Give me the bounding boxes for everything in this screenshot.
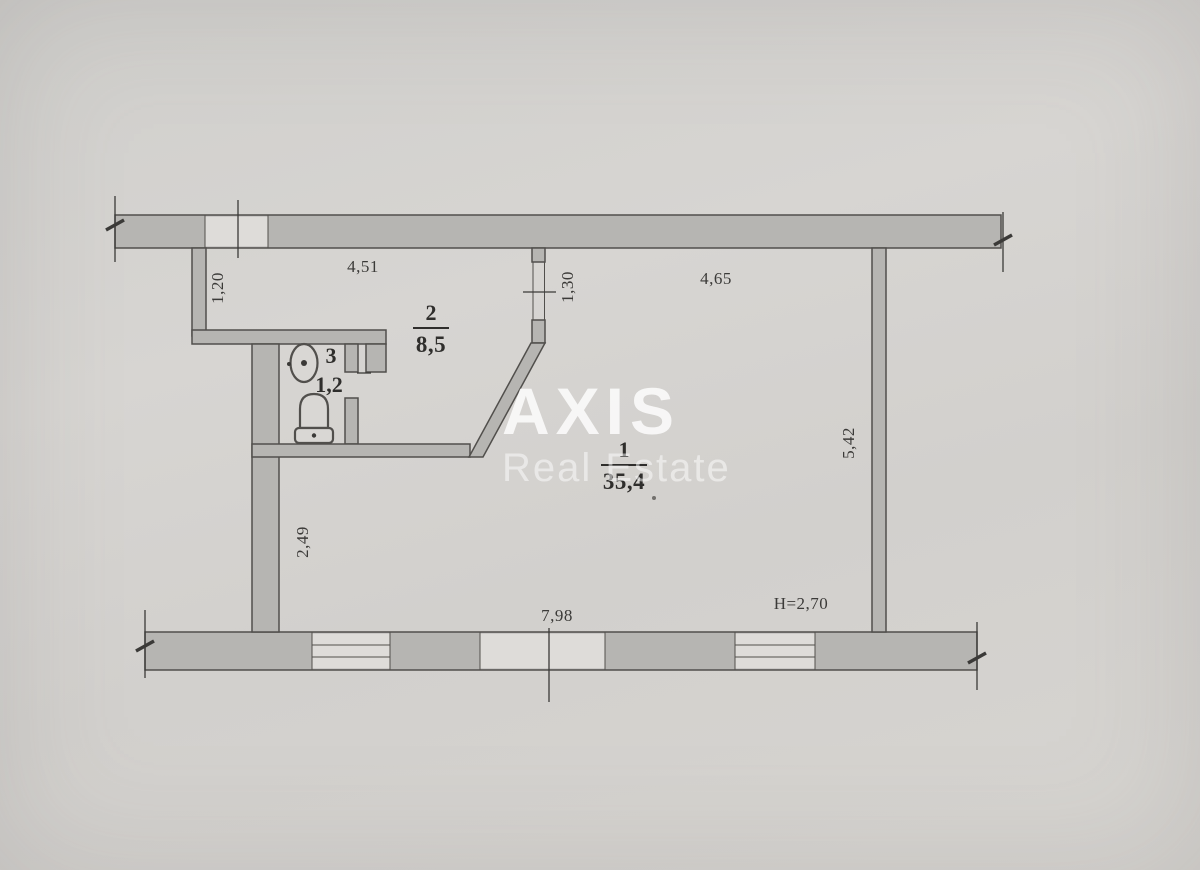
bottom-exterior-wall — [145, 632, 977, 670]
top-wall-opening — [205, 217, 268, 247]
room2-divider — [413, 327, 449, 329]
bathroom-bottom-wall — [252, 444, 470, 457]
diagonal-wall — [469, 343, 545, 457]
window-right — [735, 634, 815, 669]
room2-area: 8,5 — [416, 333, 446, 356]
room1-number: 1 — [619, 439, 630, 461]
right-wall — [872, 248, 886, 632]
toilet-icon — [295, 394, 333, 443]
room1-label: 1 35,4 — [601, 439, 647, 493]
dimension-right-depth: 5,42 — [839, 427, 859, 459]
partition-stub-top — [532, 248, 545, 262]
bathroom-door-pier — [366, 344, 386, 372]
floor-plan-photo: 4,51 4,65 1,20 1,30 5,42 2,49 7,98 H=2,7… — [0, 0, 1200, 870]
room2-number: 2 — [426, 302, 437, 324]
hall-bathroom-top-wall — [192, 330, 386, 344]
dimension-doorway: 1,30 — [558, 271, 578, 303]
window-left — [312, 634, 390, 669]
room3-area: 1,2 — [315, 372, 343, 398]
room2-label: 2 8,5 — [413, 302, 449, 356]
dimension-left-upper: 1,20 — [208, 272, 228, 304]
top-exterior-wall — [115, 215, 1001, 248]
left-upper-wall — [192, 248, 206, 336]
bathroom-right-wall-upper — [345, 344, 358, 372]
dimension-top-left: 4,51 — [347, 257, 379, 277]
ceiling-height-label: H=2,70 — [774, 594, 829, 614]
partition-stub-mid — [532, 320, 545, 343]
bottom-wall-opening — [480, 634, 605, 669]
sink-icon — [287, 344, 318, 382]
dimension-top-right: 4,65 — [700, 269, 732, 289]
floor-plan-drawing — [0, 0, 1200, 870]
bathroom-right-wall-lower — [345, 398, 358, 444]
room1-area: 35,4 — [603, 470, 645, 493]
left-lower-wall — [252, 344, 279, 632]
room1-divider — [601, 464, 647, 466]
dimension-left-lower: 2,49 — [293, 526, 313, 558]
stray-ink-mark — [652, 496, 656, 500]
dimension-bottom-total: 7,98 — [541, 606, 573, 626]
room3-number: 3 — [326, 343, 337, 369]
